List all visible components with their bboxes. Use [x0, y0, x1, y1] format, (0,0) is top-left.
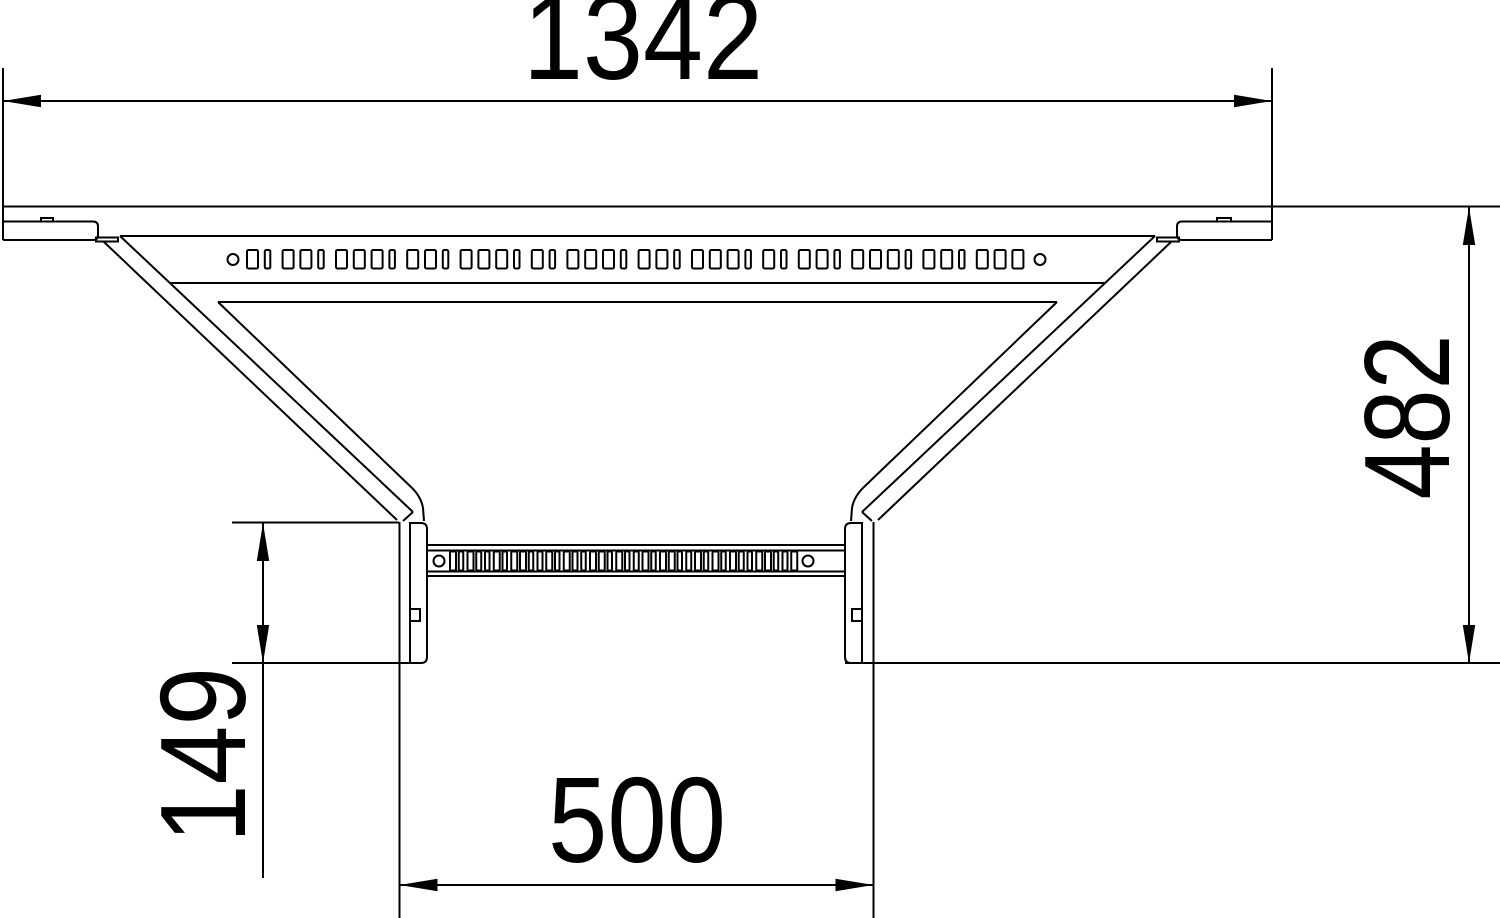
arrowhead-left-icon [400, 879, 438, 891]
rung-slot-end-hole [803, 556, 814, 567]
dimension-branch-width: 500 [400, 752, 874, 891]
rung-slot [564, 552, 570, 571]
perforation-slot [1012, 250, 1023, 269]
branch-rung [427, 545, 845, 576]
right-coupler-tab [1217, 218, 1231, 222]
arrowhead-down-icon [1463, 625, 1475, 663]
perforation-slot [621, 250, 627, 269]
perforation-slot [514, 250, 520, 269]
left-coupler [3, 218, 118, 242]
rung-slot [783, 552, 788, 571]
rung-slot [529, 552, 534, 571]
branch-perforation-row [434, 552, 814, 571]
perforation-slot [585, 250, 596, 269]
right-coupler [1157, 218, 1272, 242]
left-transition-rail [104, 236, 424, 521]
rung-slot [555, 552, 560, 571]
perforation-slot [425, 250, 436, 269]
main-run-perforation-row [228, 250, 1046, 269]
perforation-slot [496, 250, 507, 269]
perforation-slot [443, 250, 449, 269]
rung-slot [503, 552, 508, 571]
right-transition-tip-chamfer [862, 512, 872, 521]
rung-slot [546, 552, 552, 571]
arrowhead-left-icon [3, 95, 41, 107]
rung-slot [616, 552, 622, 571]
rung-slot [721, 552, 726, 571]
technical-drawing-canvas: 1342 482 149 500 [0, 0, 1500, 918]
left-coupler-step [96, 238, 118, 242]
rung-slot [476, 552, 481, 571]
right-coupler-step [1157, 238, 1179, 242]
rung-slot [538, 552, 543, 571]
perforation-slot-end-hole [1035, 254, 1046, 265]
left-coupler-body [3, 222, 98, 241]
perforation-slot [710, 250, 721, 269]
dimension-overall-depth: 482 [1339, 207, 1475, 663]
perforation-slot [461, 250, 472, 269]
branch-section [232, 522, 1500, 918]
rung-slot [520, 552, 526, 571]
rung-slot [739, 552, 744, 571]
right-transition-inner-line [862, 236, 1155, 512]
perforation-slot [799, 250, 810, 269]
perforation-slot [656, 250, 667, 269]
left-transition-tip-chamfer [403, 512, 413, 521]
arrowhead-down-icon [257, 625, 269, 663]
perforation-slot [817, 250, 828, 269]
perforation-slot [995, 250, 1006, 269]
rung-slot [573, 552, 578, 571]
arrowhead-right-icon [1234, 95, 1272, 107]
perforation-slot [870, 250, 881, 269]
perforation-slot-end-hole [228, 254, 239, 265]
left-coupler-tab [41, 218, 53, 222]
perforation-slot [941, 250, 952, 269]
rung-slot [791, 552, 797, 571]
rung-slot [450, 552, 456, 571]
right-transition-inner-corner [851, 302, 1057, 521]
rung-slot [695, 552, 701, 571]
perforation-slot [300, 250, 311, 269]
rung-slot [748, 552, 753, 571]
dimension-value-500: 500 [548, 752, 726, 888]
rung-slot [774, 552, 779, 571]
perforation-slot [959, 250, 965, 269]
rung-slot [660, 552, 666, 571]
perforation-slot [728, 250, 739, 269]
right-transition-rail [851, 236, 1171, 521]
rung-slot [651, 552, 656, 571]
branch-right-connector-bar [845, 523, 862, 663]
perforation-slot [550, 250, 556, 269]
perforation-slot [781, 250, 787, 269]
rung-slot [590, 552, 596, 571]
rung-slot [756, 552, 762, 571]
rung-slot [459, 552, 464, 571]
perforation-slot [336, 250, 347, 269]
rung-slot [643, 552, 649, 571]
dimension-value-482: 482 [1339, 335, 1475, 500]
add-on-tee-drawing: 1342 482 149 500 [0, 0, 1500, 918]
rung-slot [669, 552, 675, 571]
rung-slot [765, 552, 771, 571]
perforation-slot [692, 250, 703, 269]
rung-slot-end-hole [434, 556, 445, 567]
right-coupler-body [1177, 222, 1272, 241]
perforation-slot [906, 250, 912, 269]
rung-slot [608, 552, 613, 571]
rung-slot [494, 552, 500, 571]
perforation-slot [283, 250, 294, 269]
rung-slot [704, 552, 709, 571]
perforation-slot [745, 250, 751, 269]
rung-slot [686, 552, 691, 571]
rung-slot [511, 552, 517, 571]
branch-right-connector-notch [852, 609, 862, 621]
dimension-value-1342: 1342 [523, 0, 763, 105]
perforation-slot [389, 250, 395, 269]
rung-slot [713, 552, 719, 571]
perforation-slot [852, 250, 863, 269]
dimension-value-149: 149 [135, 667, 271, 843]
perforation-slot [977, 250, 988, 269]
perforation-slot [603, 250, 614, 269]
arrowhead-right-icon [836, 879, 874, 891]
left-transition-inner-corner [218, 302, 424, 521]
rung-slot [678, 552, 683, 571]
perforation-slot [318, 250, 324, 269]
arrowhead-up-icon [257, 523, 269, 561]
perforation-slot [372, 250, 383, 269]
perforation-slot [923, 250, 934, 269]
branch-left-connector-notch [410, 609, 420, 621]
perforation-slot [674, 250, 680, 269]
branch-left-connector-bar [410, 523, 427, 663]
perforation-slot [888, 250, 899, 269]
rung-slot [730, 552, 736, 571]
rung-slot [581, 552, 586, 571]
perforation-slot [834, 250, 840, 269]
perforation-slot [532, 250, 543, 269]
arrowhead-up-icon [1463, 207, 1475, 245]
rung-slot [634, 552, 639, 571]
rung-slot [625, 552, 630, 571]
left-transition-inner-line [120, 236, 413, 512]
dimension-overall-width: 1342 [3, 0, 1272, 107]
perforation-slot [354, 250, 365, 269]
rung-slot [599, 552, 605, 571]
rung-slot [485, 552, 490, 571]
perforation-slot [763, 250, 774, 269]
rung-slot [468, 552, 474, 571]
perforation-slot [639, 250, 650, 269]
perforation-slot [247, 250, 258, 269]
perforation-slot [407, 250, 418, 269]
dimension-branch-offset: 149 [135, 523, 271, 878]
perforation-slot [567, 250, 578, 269]
perforation-slot [478, 250, 489, 269]
perforation-slot [265, 250, 271, 269]
